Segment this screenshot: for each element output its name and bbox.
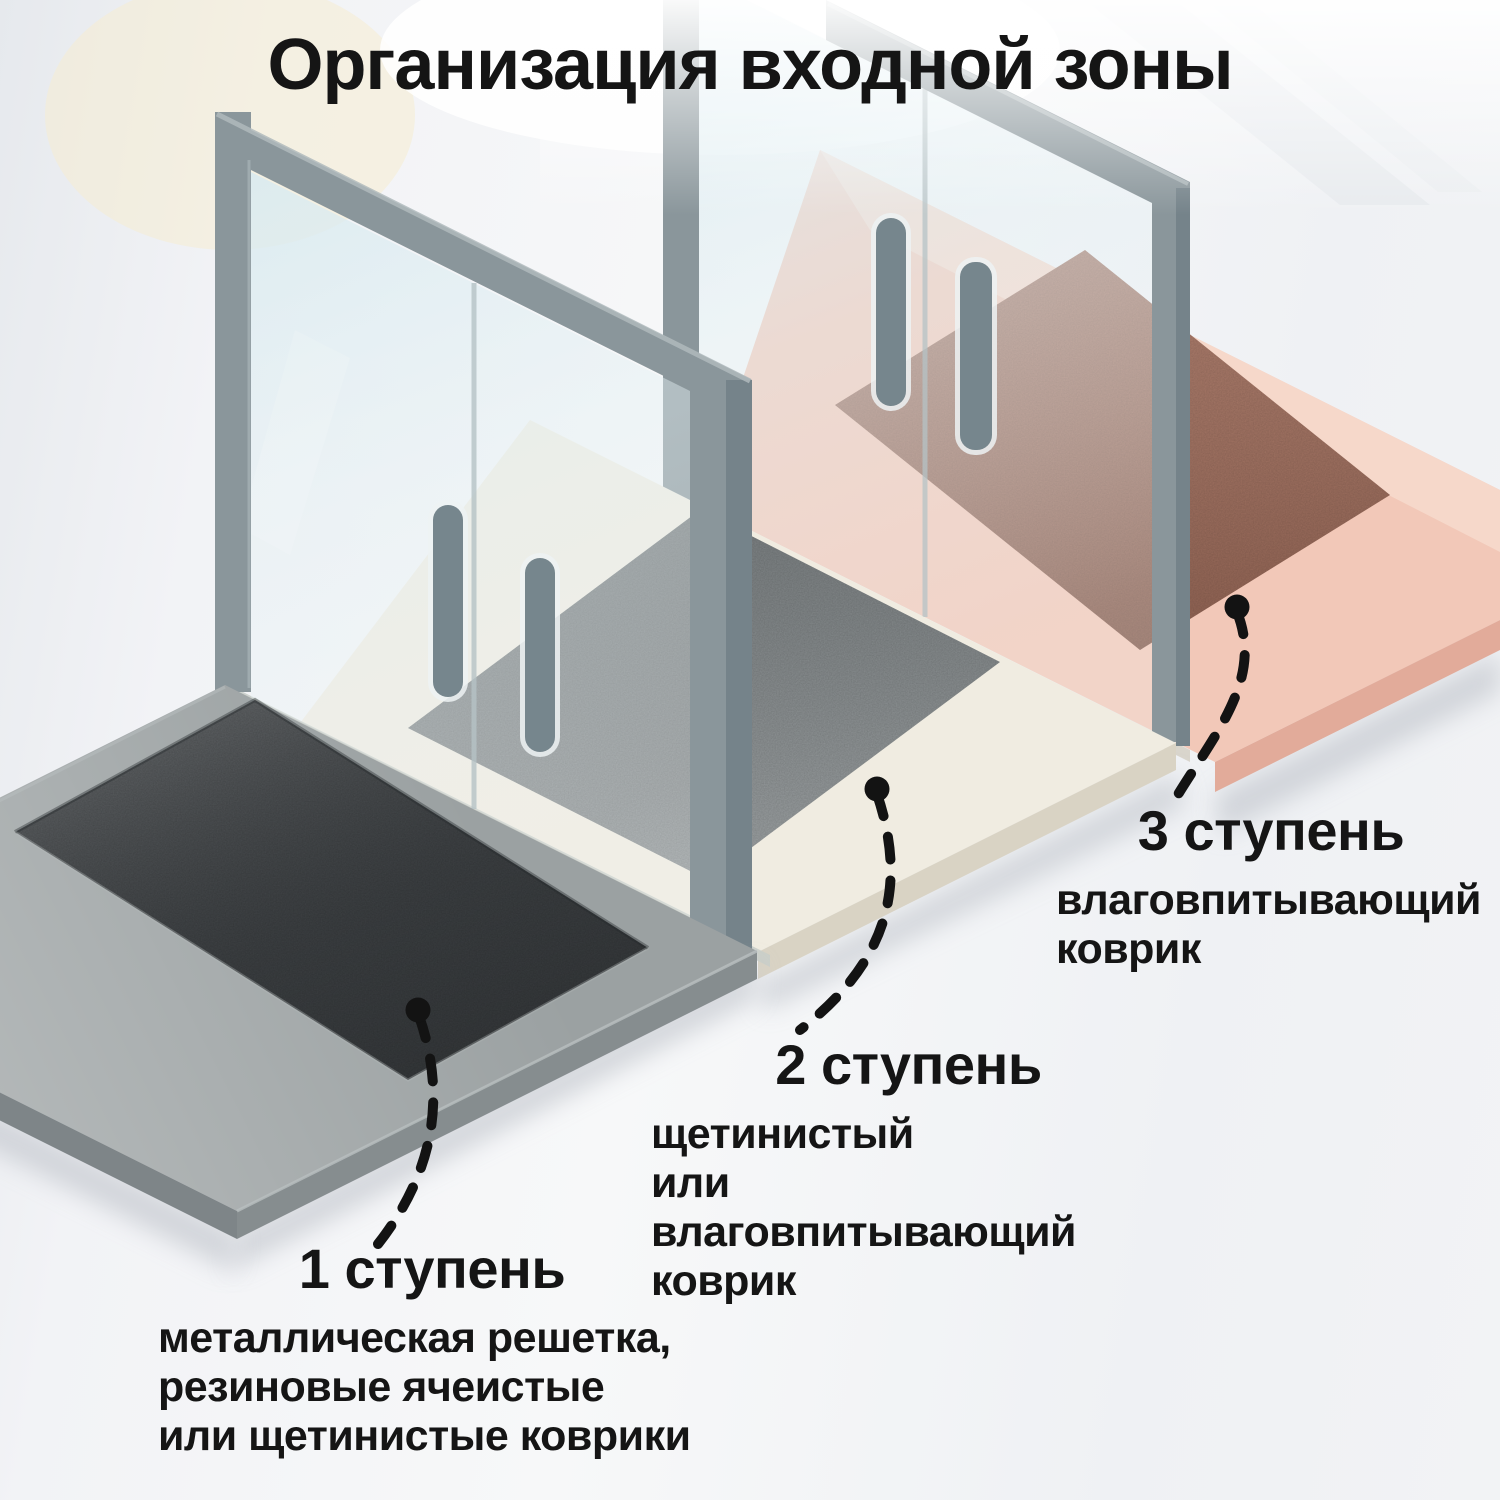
callout-description: металлическая решетка, резиновые ячеисты… (158, 1314, 706, 1461)
page-title: Организация входной зоны (0, 28, 1500, 104)
callout-dot-step3 (1225, 595, 1250, 620)
callout-heading: 2 ступень (651, 1034, 1166, 1096)
door-frame-left-post (215, 112, 251, 692)
callout-dot-step1 (406, 998, 431, 1023)
door-handle-icon (433, 505, 463, 697)
callout-heading: 3 ступень (1056, 800, 1486, 862)
callout-description: щетинистый или влаговпитывающий коврик (651, 1110, 1166, 1306)
door-handle-icon (960, 262, 992, 450)
callout-step-2: 2 ступень щетинистый или влаговпитывающи… (651, 1034, 1166, 1306)
door-handle-icon (525, 558, 555, 752)
door-frame-right-post (1152, 182, 1176, 742)
door-frame-right-post-side (1176, 188, 1190, 746)
door-handle-icon (876, 218, 906, 406)
door-frame-right-post (690, 371, 726, 949)
callout-heading: 1 ступень (158, 1238, 706, 1300)
callout-description: влаговпитывающий коврик (1056, 876, 1486, 974)
callout-step-3: 3 ступень влаговпитывающий коврик (1056, 800, 1486, 974)
infographic-root: Организация входной зоны 1 ступень метал… (0, 0, 1500, 1500)
callout-dot-step2 (865, 777, 890, 802)
callout-step-1: 1 ступень металлическая решетка, резинов… (158, 1238, 706, 1461)
door-frame-right-post-side (726, 380, 752, 954)
